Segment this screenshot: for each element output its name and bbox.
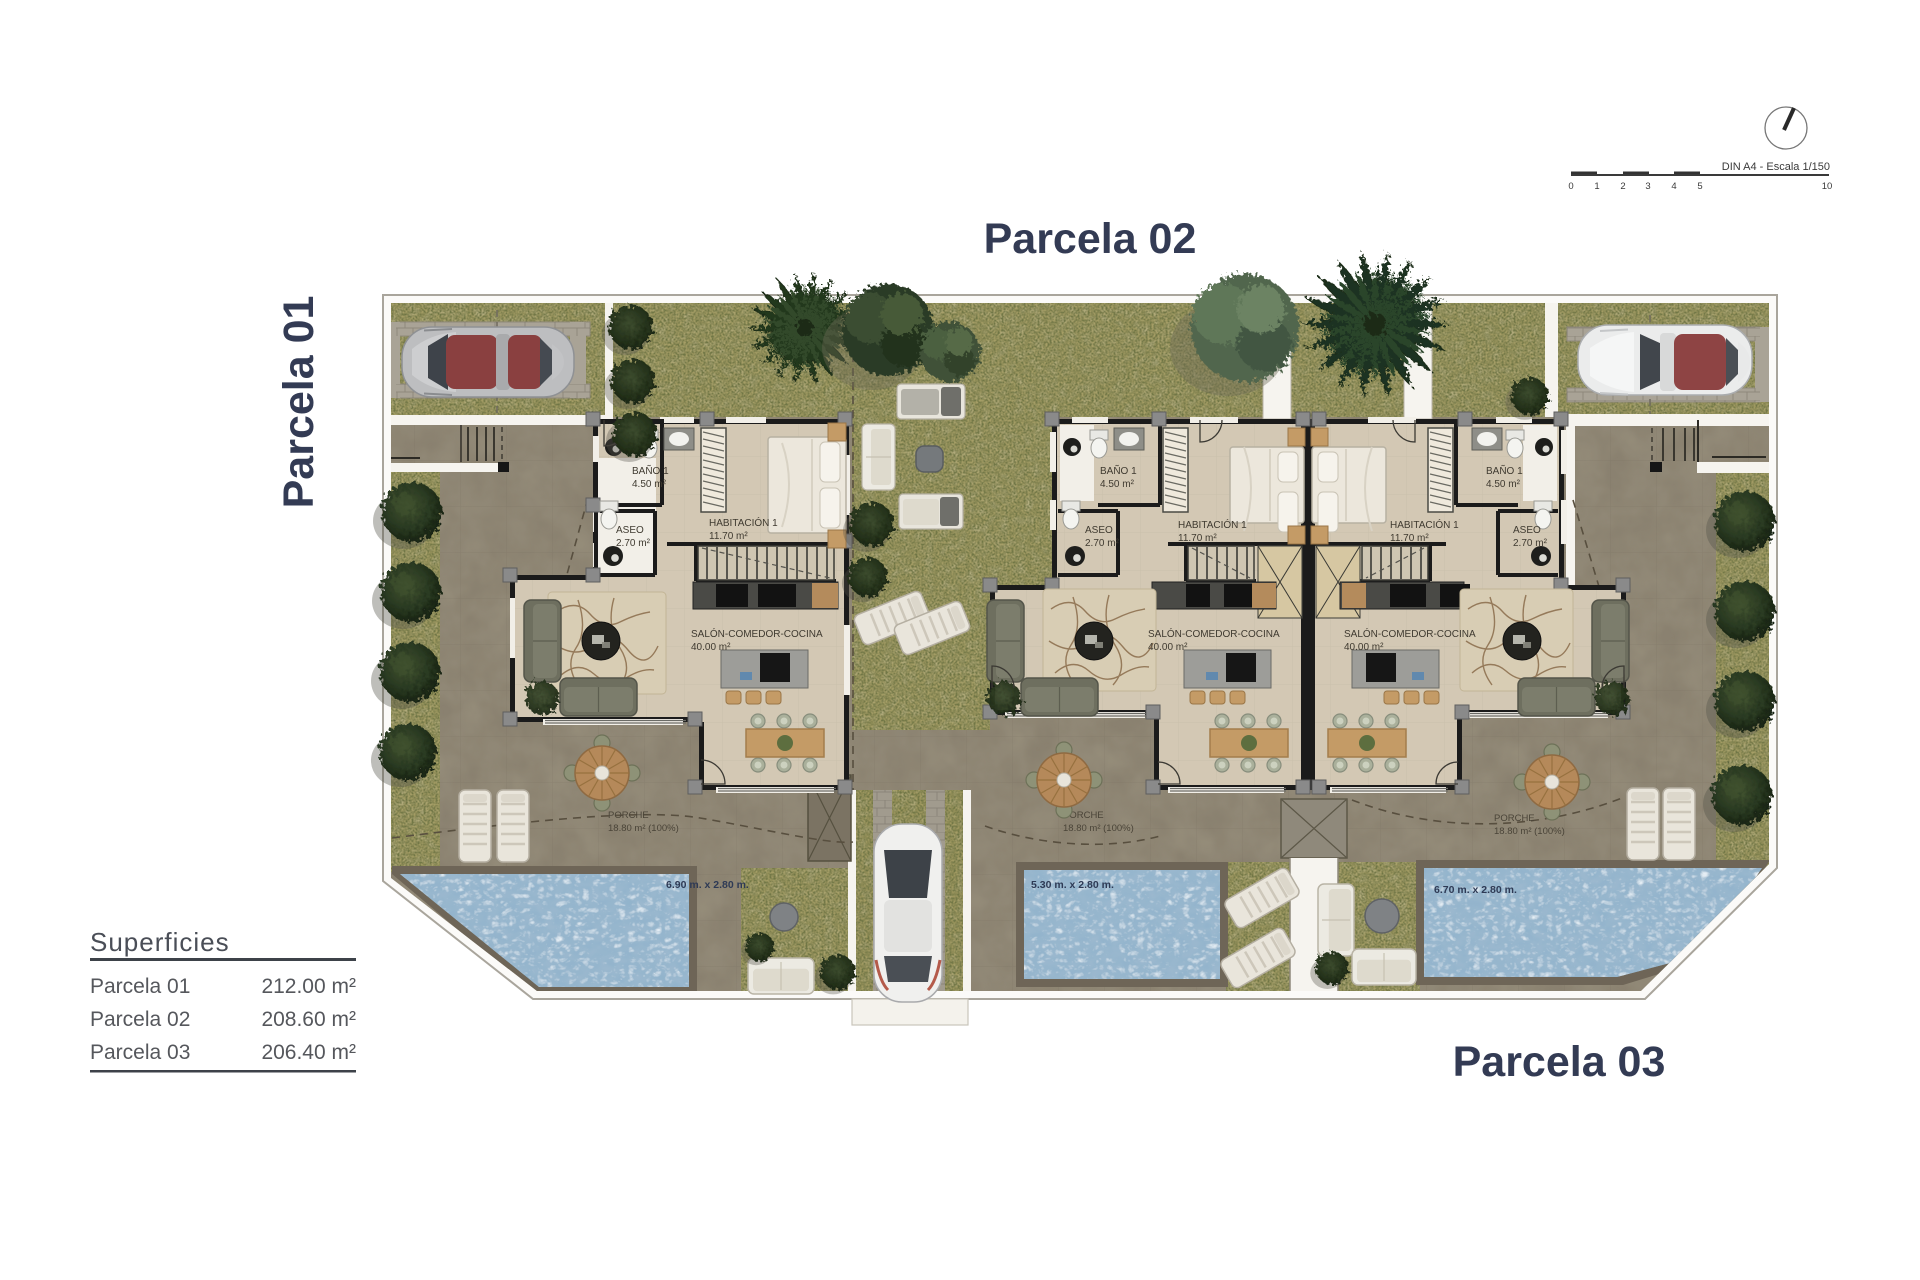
svg-text:PORCHE: PORCHE (1494, 813, 1535, 824)
svg-text:HABITACIÓN 1: HABITACIÓN 1 (1390, 518, 1459, 531)
svg-text:SALÓN-COMEDOR-COCINA: SALÓN-COMEDOR-COCINA (1148, 627, 1280, 640)
svg-text:SALÓN-COMEDOR-COCINA: SALÓN-COMEDOR-COCINA (1344, 627, 1476, 640)
svg-text:11.70 m²: 11.70 m² (709, 531, 748, 542)
svg-text:HABITACIÓN 1: HABITACIÓN 1 (1178, 518, 1247, 531)
svg-text:Parcela 01: Parcela 01 (275, 296, 323, 509)
svg-text:5: 5 (1697, 181, 1702, 192)
svg-text:4.50 m²: 4.50 m² (632, 479, 667, 490)
svg-text:Parcela 02: Parcela 02 (984, 215, 1197, 263)
svg-text:40.00 m²: 40.00 m² (1344, 642, 1384, 653)
svg-text:208.60 m²: 208.60 m² (261, 1008, 356, 1031)
svg-text:11.70 m²: 11.70 m² (1390, 533, 1429, 544)
svg-text:5.30 m. x 2.80 m.: 5.30 m. x 2.80 m. (1031, 879, 1114, 891)
svg-text:4.50 m²: 4.50 m² (1100, 479, 1135, 490)
svg-text:2.70 m²: 2.70 m² (1513, 538, 1548, 549)
svg-text:ASEO: ASEO (1513, 525, 1541, 536)
svg-text:10: 10 (1822, 181, 1833, 192)
svg-text:4.50 m²: 4.50 m² (1486, 479, 1521, 490)
svg-text:3: 3 (1645, 181, 1650, 192)
svg-text:40.00 m²: 40.00 m² (1148, 642, 1188, 653)
svg-text:Parcela 03: Parcela 03 (1453, 1038, 1666, 1086)
svg-text:Parcela 01: Parcela 01 (90, 975, 190, 998)
svg-text:2.70 m²: 2.70 m² (1085, 538, 1120, 549)
svg-text:BAÑO 1: BAÑO 1 (1100, 464, 1137, 477)
svg-text:4: 4 (1671, 181, 1676, 192)
svg-text:BAÑO 1: BAÑO 1 (632, 464, 669, 477)
svg-text:2.70 m²: 2.70 m² (616, 538, 651, 549)
svg-text:6.70 m. x 2.80 m.: 6.70 m. x 2.80 m. (1434, 884, 1517, 896)
svg-text:PORCHE: PORCHE (608, 810, 649, 821)
svg-text:206.40 m²: 206.40 m² (261, 1041, 356, 1064)
svg-text:212.00 m²: 212.00 m² (261, 975, 356, 998)
svg-text:40.00 m²: 40.00 m² (691, 642, 731, 653)
svg-text:ASEO: ASEO (616, 525, 644, 536)
svg-text:18.80 m² (100%): 18.80 m² (100%) (1063, 823, 1134, 834)
svg-text:Parcela 02: Parcela 02 (90, 1008, 190, 1031)
svg-text:SALÓN-COMEDOR-COCINA: SALÓN-COMEDOR-COCINA (691, 627, 823, 640)
svg-text:11.70 m²: 11.70 m² (1178, 533, 1217, 544)
svg-text:0: 0 (1568, 181, 1573, 192)
svg-text:BAÑO 1: BAÑO 1 (1486, 464, 1523, 477)
svg-text:18.80 m² (100%): 18.80 m² (100%) (1494, 826, 1565, 837)
svg-text:6.90 m. x 2.80 m.: 6.90 m. x 2.80 m. (666, 879, 749, 891)
svg-text:DIN A4 - Escala 1/150: DIN A4 - Escala 1/150 (1722, 161, 1830, 173)
svg-text:18.80 m² (100%): 18.80 m² (100%) (608, 823, 679, 834)
svg-text:Superficies: Superficies (90, 927, 230, 957)
svg-text:HABITACIÓN 1: HABITACIÓN 1 (709, 516, 778, 529)
svg-text:Parcela 03: Parcela 03 (90, 1041, 190, 1064)
svg-text:1: 1 (1594, 181, 1599, 192)
svg-text:2: 2 (1620, 181, 1625, 192)
svg-text:ASEO: ASEO (1085, 525, 1113, 536)
